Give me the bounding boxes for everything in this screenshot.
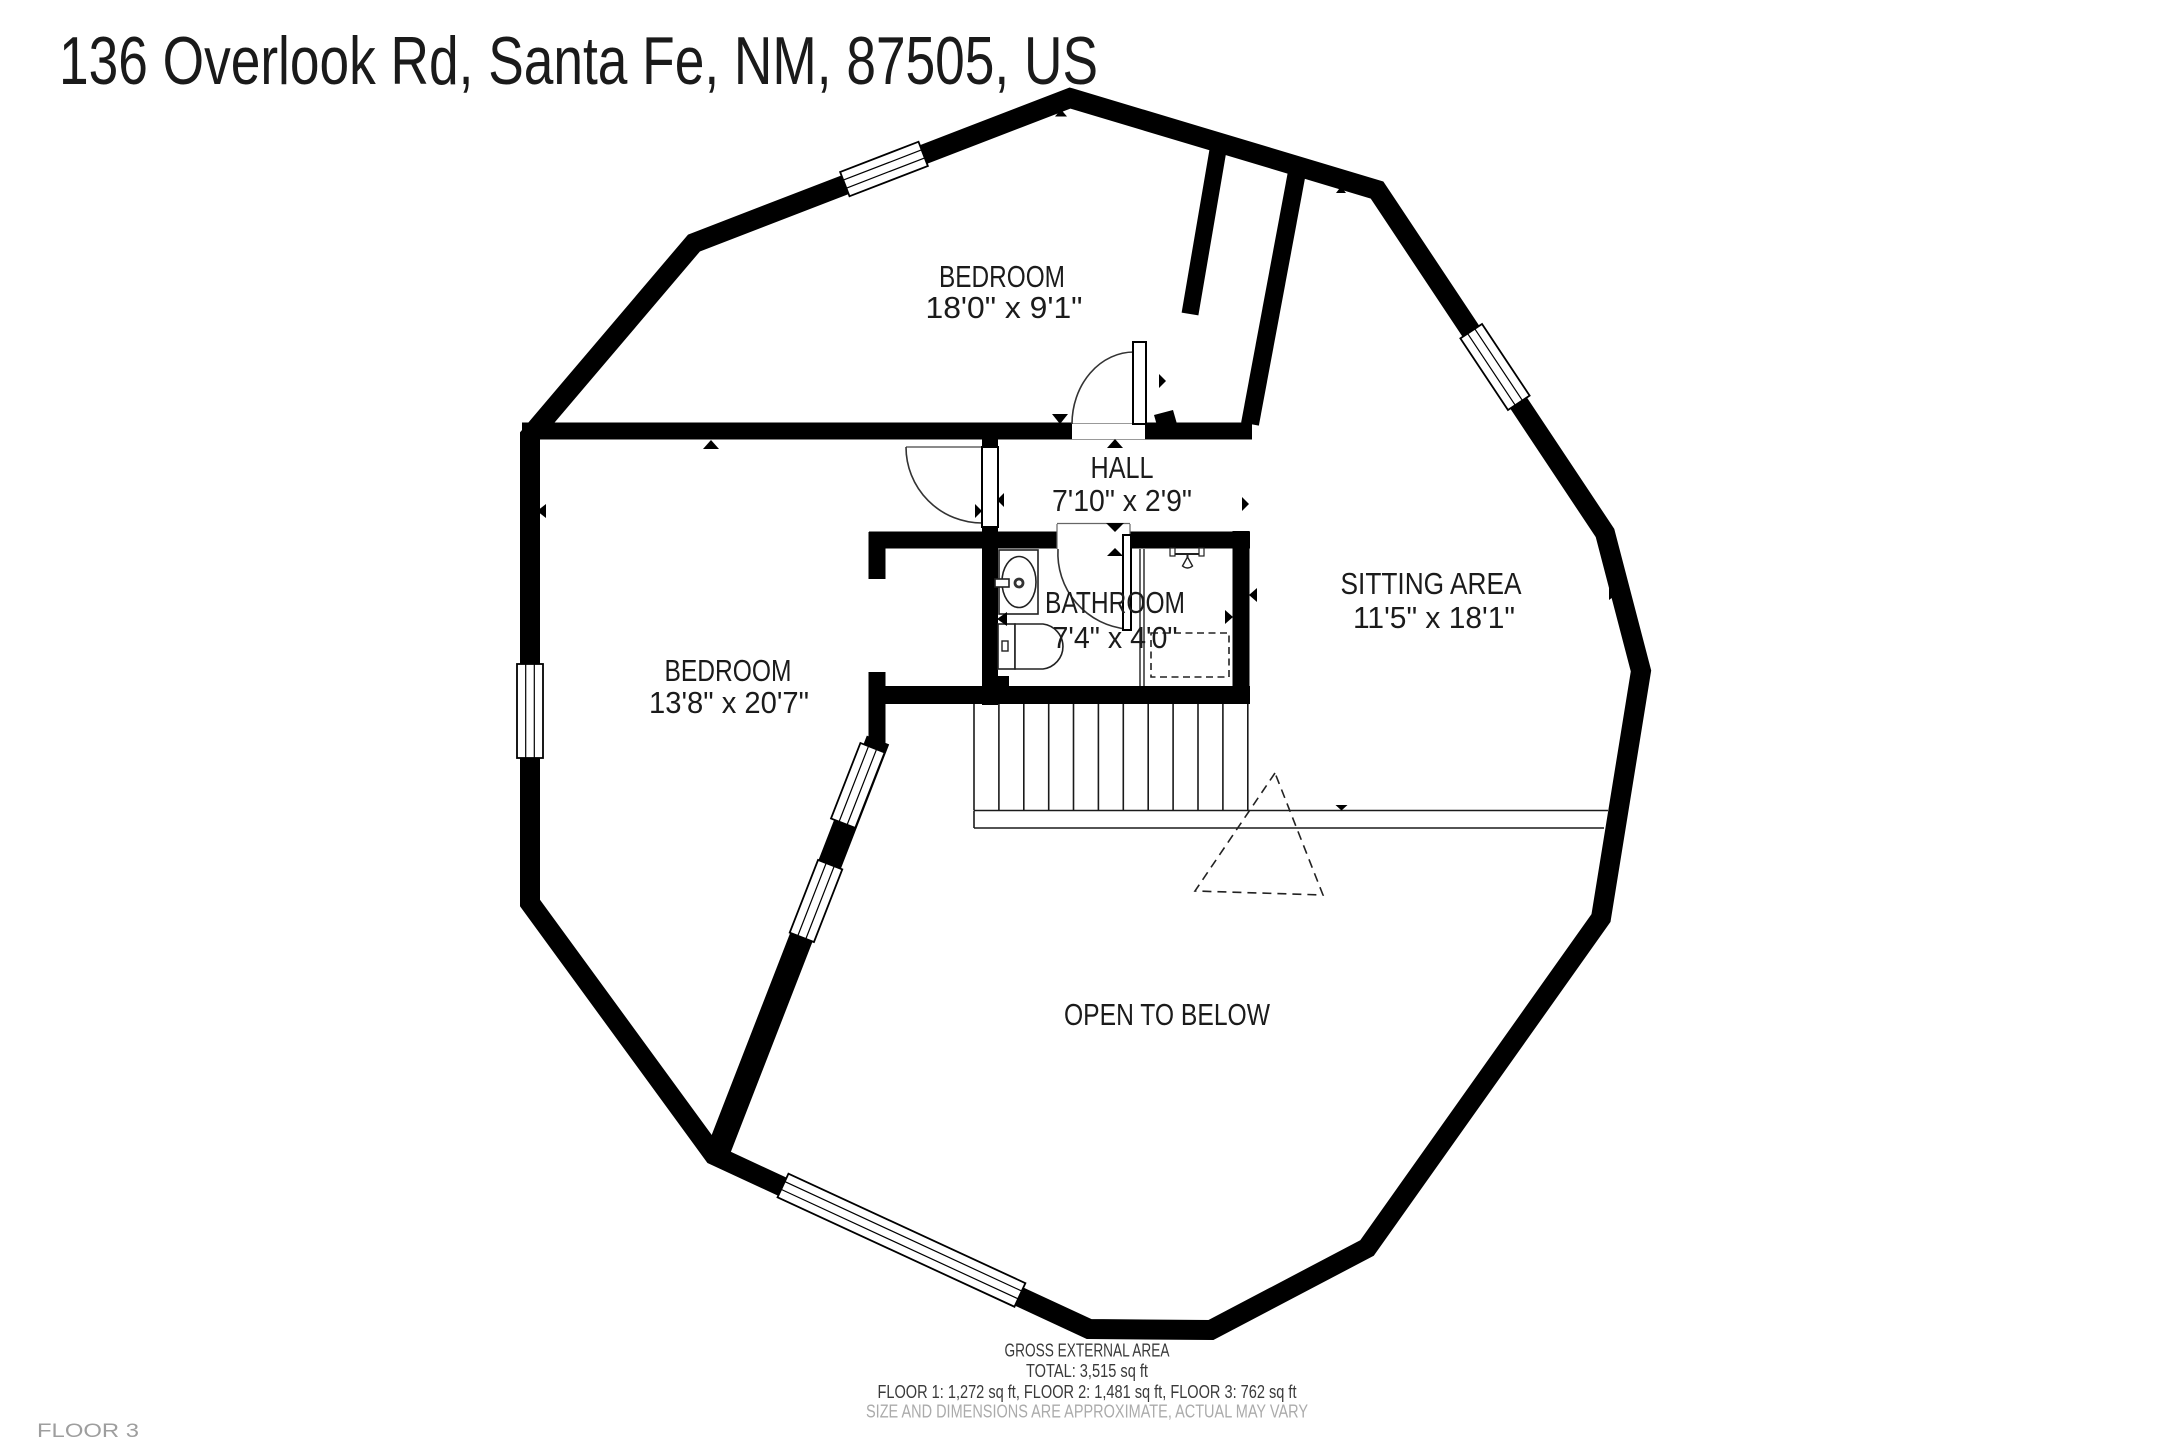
svg-text:7'4" x 4'0": 7'4" x 4'0" xyxy=(1053,620,1178,655)
svg-text:11'5" x 18'1": 11'5" x 18'1" xyxy=(1353,600,1515,635)
svg-text:BEDROOM: BEDROOM xyxy=(665,653,792,688)
svg-text:OPEN TO BELOW: OPEN TO BELOW xyxy=(1064,997,1271,1032)
svg-text:HALL: HALL xyxy=(1091,450,1154,485)
svg-text:18'0" x 9'1": 18'0" x 9'1" xyxy=(926,290,1083,325)
svg-text:FLOOR 1: 1,272 sq ft, FLOOR 2:: FLOOR 1: 1,272 sq ft, FLOOR 2: 1,481 sq … xyxy=(878,1382,1297,1402)
svg-text:SITTING AREA: SITTING AREA xyxy=(1341,566,1522,601)
svg-text:SIZE AND DIMENSIONS ARE APPROX: SIZE AND DIMENSIONS ARE APPROXIMATE, ACT… xyxy=(866,1402,1308,1422)
svg-text:TOTAL: 3,515 sq ft: TOTAL: 3,515 sq ft xyxy=(1026,1361,1148,1381)
svg-text:13'8" x 20'7": 13'8" x 20'7" xyxy=(649,685,809,720)
svg-text:BATHROOM: BATHROOM xyxy=(1045,585,1185,620)
svg-text:GROSS EXTERNAL AREA: GROSS EXTERNAL AREA xyxy=(1005,1341,1170,1361)
svg-text:FLOOR 3: FLOOR 3 xyxy=(37,1420,139,1442)
svg-text:BEDROOM: BEDROOM xyxy=(939,259,1065,294)
svg-text:136 Overlook Rd, Santa Fe, NM,: 136 Overlook Rd, Santa Fe, NM, 87505, US xyxy=(59,23,1098,99)
svg-text:7'10" x 2'9": 7'10" x 2'9" xyxy=(1052,483,1192,518)
